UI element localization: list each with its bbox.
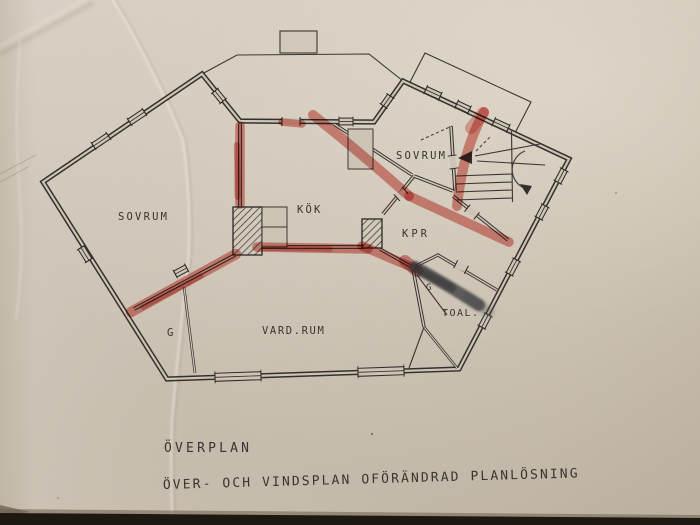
paper-speck [371,433,373,435]
red-marker-stroke [313,115,409,196]
red-marker-stroke [282,122,302,124]
photo-bottom-edge [0,505,700,525]
corner-fold-highlight [0,0,90,47]
room-label-g-right: G [426,283,434,293]
window-marker [215,370,261,384]
kitchen-counter [262,207,287,227]
floor-plan-drawing: SOVRUM KÖK SOVRUM KPR VARD.RUM G G TOAL.… [0,0,700,525]
roof-chimney [280,31,317,53]
window-marker [339,117,353,127]
door-opening [448,155,459,169]
door-swing-arc [512,151,527,189]
room-label-g-left: G [167,327,176,339]
room-label-toal: TOAL. [442,308,480,319]
red-marker-stroke [143,276,201,307]
window-marker [424,85,443,101]
corner-fold-shadow [0,3,93,54]
paper-speck [57,497,59,499]
room-label-kpr: KPR [402,228,430,240]
red-marker-stroke [265,248,330,249]
caption-plan: ÖVERPLAN [164,439,252,456]
stair-direction-lines [475,144,545,165]
torn-edge-line [16,40,21,320]
room-label-sovrum-left: SOVRUM [118,211,169,223]
room-label-vardrum: VARD.RUM [262,325,325,337]
room-label-kok: KÖK [297,203,323,216]
room-label-sovrum-right: SOVRUM [396,150,447,162]
roof-line [202,54,403,81]
photo-of-floor-plan: SOVRUM KÖK SOVRUM KPR VARD.RUM G G TOAL.… [0,0,700,525]
red-marker-stroke [237,145,238,197]
paper-speck [615,192,617,194]
arc-arrowhead [520,184,532,195]
window-marker [492,117,511,133]
caption-note: ÖVER- OCH VINDSPLAN OFÖRÄNDRAD PLANLÖSNI… [163,464,580,493]
dashed-line [476,137,490,151]
captions: ÖVERPLAN ÖVER- OCH VINDSPLAN OFÖRÄNDRAD … [163,439,580,493]
window-marker [358,365,404,379]
dashed-line [421,126,452,140]
